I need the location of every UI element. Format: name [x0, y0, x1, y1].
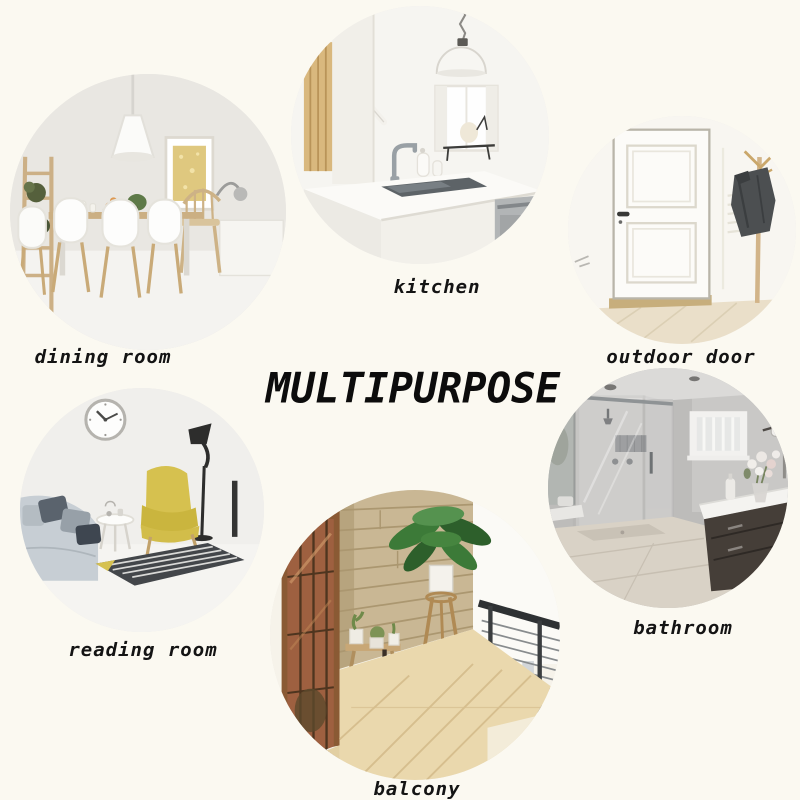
- poster-title: MULTIPURPOSE: [266, 364, 560, 413]
- kitchen-window: [435, 86, 497, 161]
- dining-room-scene: [10, 74, 286, 350]
- ceiling-vent: [579, 370, 605, 381]
- poster-canvas: MULTIPURPOSE dining room kitchen outdoor…: [0, 0, 800, 800]
- bathroom-photo: [548, 368, 788, 608]
- room-label-reading-room: reading room: [68, 639, 217, 661]
- room-label-outdoor-door: outdoor door: [606, 346, 755, 368]
- outdoor-door-scene: [568, 116, 796, 344]
- kitchen-photo: [291, 6, 549, 264]
- towel: [558, 496, 574, 506]
- balcony-scene: [270, 490, 560, 780]
- vanity: [699, 488, 788, 591]
- mirror-panel: [548, 411, 574, 505]
- recessed-light: [604, 384, 616, 390]
- recessed-light: [689, 376, 700, 381]
- bathroom-scene: [548, 368, 788, 608]
- table-lamp-silhouette: [460, 122, 478, 143]
- outdoor-door-photo: [568, 116, 796, 344]
- reading-room-photo: [20, 388, 264, 632]
- door-handle: [617, 212, 630, 217]
- glass-front: [574, 397, 644, 529]
- recessed-light: [747, 373, 757, 378]
- shower-enclosure: [574, 397, 672, 529]
- room-label-bathroom: bathroom: [633, 617, 733, 639]
- room-label-dining-room: dining room: [35, 346, 172, 368]
- kitchen-scene: [291, 6, 549, 264]
- glass-side: [644, 397, 673, 529]
- dining-room-photo: [10, 74, 286, 350]
- room-label-balcony: balcony: [373, 778, 460, 800]
- balcony-photo: [270, 490, 560, 780]
- front-door: [614, 130, 710, 299]
- reading-room-scene: [20, 388, 264, 632]
- soap-bottle: [726, 478, 736, 500]
- plant-silhouette: [295, 689, 327, 733]
- wall-clock: [86, 400, 125, 439]
- glass-door: [282, 510, 340, 768]
- bathroom-window: [687, 411, 749, 460]
- room-label-kitchen: kitchen: [393, 276, 480, 298]
- wall-column: [332, 6, 373, 184]
